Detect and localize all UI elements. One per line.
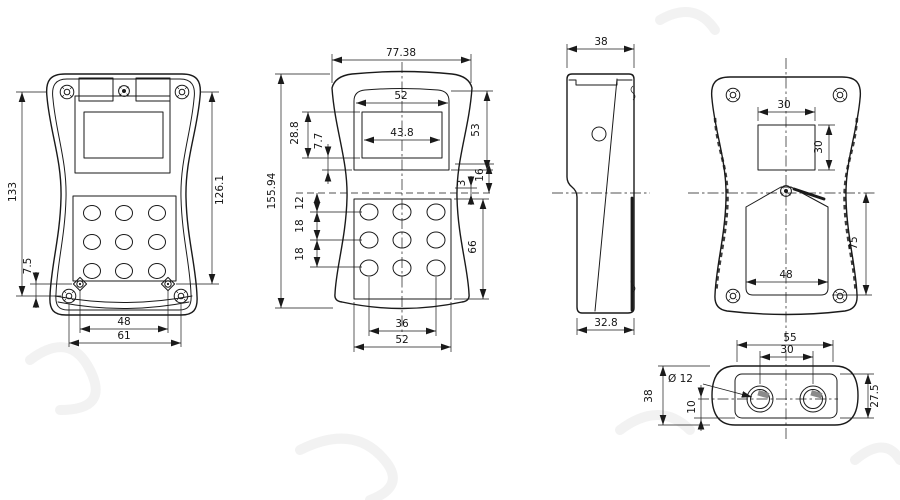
dim-depth-bottom-label: 32.8	[594, 317, 617, 329]
dim-row-offset-label: 12	[294, 196, 306, 209]
dim-door-height-label: 75	[848, 236, 860, 249]
keypad-panel	[354, 199, 451, 299]
dim-row-pitch1-label: 18	[294, 219, 306, 232]
dim-boss-span-label: 48	[117, 316, 130, 328]
keypad-buttons	[84, 206, 166, 279]
corner-screw	[833, 289, 847, 303]
corner-screw	[174, 289, 188, 303]
watermark	[30, 12, 900, 500]
dim-keypad-height-label: 66	[467, 240, 479, 254]
corner-screw	[726, 88, 740, 102]
dim-window-height-label: 30	[813, 140, 825, 153]
dim-waist-to-keypad-label: 16	[474, 168, 486, 182]
dim-waist-gap-label: 3	[456, 180, 468, 187]
front-outline-inner	[53, 79, 195, 310]
top-groove	[569, 80, 632, 85]
side-outline	[567, 74, 634, 313]
dim-gland-pitch-label: 30	[780, 344, 793, 356]
boss-screw	[73, 277, 86, 290]
top-tab-left	[79, 78, 113, 101]
corner-screw	[62, 289, 76, 303]
dim-bezel-height-label: 53	[470, 123, 482, 136]
keypad-buttons	[360, 204, 445, 276]
corner-screw	[726, 289, 740, 303]
corner-screw	[833, 88, 847, 102]
dim-overall-height-label: 133	[7, 182, 19, 202]
dim-row-pitch2-label: 18	[294, 247, 306, 260]
hole-shading-right	[810, 390, 822, 398]
door-edge-shading	[794, 189, 824, 199]
front-dimension-view: 77.38 52 43.8 28.8 7.7 53 155.94 16 3	[266, 47, 494, 352]
bottom-outline	[712, 366, 858, 425]
back-window	[758, 125, 815, 170]
dim-depth-top-label: 38	[594, 36, 607, 48]
lcd-panel	[75, 96, 170, 173]
center-screw	[119, 86, 130, 97]
keypad-panel	[73, 196, 176, 281]
corner-screw	[60, 85, 74, 99]
dim-end-span-label: 55	[783, 332, 796, 344]
draft-line	[595, 79, 617, 311]
dim-width-top-label: 77.38	[386, 47, 416, 59]
back-view: 30 30 75 48	[688, 58, 876, 345]
dim-door-width-label: 48	[779, 269, 792, 281]
dim-bezel-width-label: 52	[394, 90, 407, 102]
dim-height-to-boss-label: 126.1	[214, 175, 226, 205]
corner-screw	[175, 85, 189, 99]
dim-base-width-label: 61	[117, 330, 130, 342]
dim-window-width-label: 30	[777, 99, 790, 111]
front-view: 133 7.5 126.1 48 61	[7, 74, 226, 347]
gland-dia-leader	[703, 384, 752, 397]
dim-lcd-width-label: 43.8	[390, 127, 413, 139]
lcd-window	[84, 112, 163, 158]
hole-shading-left	[757, 390, 769, 398]
dim-overall-height-label: 155.94	[266, 172, 278, 209]
dim-boss-offset-label: 7.5	[22, 258, 34, 275]
technical-drawing: 133 7.5 126.1 48 61 77.38 52 43.8	[0, 0, 900, 500]
dim-face-depth-label: 27.5	[869, 384, 881, 407]
side-view: 38 32.8	[552, 36, 650, 335]
side-hole	[592, 127, 606, 141]
dim-lcd-to-bezel-label: 7.7	[313, 133, 325, 150]
top-tab-right	[136, 78, 170, 101]
dim-gland-dia-label: Ø 12	[668, 373, 693, 385]
dim-button-span-label: 36	[395, 318, 409, 330]
dim-gland-offset-label: 10	[686, 400, 698, 413]
dim-lcd-height-label: 28.8	[289, 121, 301, 144]
boss-screw	[161, 277, 174, 290]
drawing-canvas: 133 7.5 126.1 48 61 77.38 52 43.8	[0, 0, 900, 500]
dim-depth-label: 38	[643, 389, 655, 402]
dim-keypad-width-label: 52	[395, 334, 408, 346]
